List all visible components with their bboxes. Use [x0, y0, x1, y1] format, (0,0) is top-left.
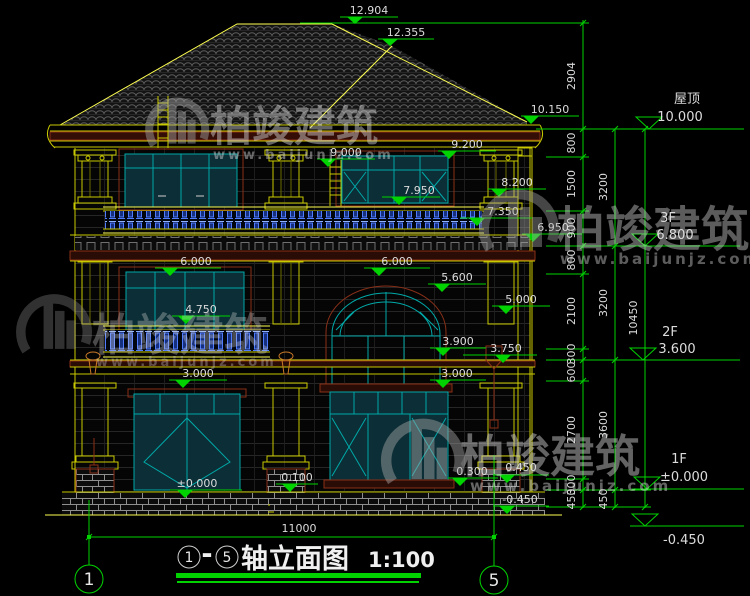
level-2f-value: 3.600: [658, 342, 695, 357]
marker-3900-value: 3.900: [442, 335, 474, 348]
drawing-svg: 12.904 12.355 10.150 9.200 9.000 8.200 7…: [0, 0, 750, 596]
watermark-brand: 柏竣建筑: [460, 430, 640, 483]
dim-2904: 2904: [565, 62, 578, 90]
axis-5-number: 5: [489, 571, 500, 591]
marker-6000-left-value: 6.000: [180, 255, 212, 268]
watermark-brand: 柏竣建筑: [210, 102, 378, 151]
cad-elevation-drawing: 12.904 12.355 10.150 9.200 9.000 8.200 7…: [0, 0, 750, 596]
marker-12355-value: 12.355: [387, 26, 426, 39]
marker-5600-value: 5.600: [441, 271, 473, 284]
watermark-left: 柏竣建筑 www.baijunjz.com: [21, 299, 277, 370]
title-axis-to: 5: [223, 550, 232, 566]
marker-0000-value: ±0.000: [177, 477, 218, 490]
level-1f-label: 1F: [671, 452, 687, 467]
marker-10150: 10.150: [521, 103, 579, 124]
drawing-scale: 1:100: [368, 548, 435, 572]
watermark-url: www.baijunjz.com: [470, 477, 671, 495]
level-2f-label: 2F: [662, 325, 678, 340]
level-roof-value: 10.000: [657, 110, 703, 125]
marker-7950-value: 7.950: [403, 184, 435, 197]
level-roof: 屋顶 10.000: [630, 92, 744, 129]
dim-600: 600: [565, 362, 578, 383]
axis-1-number: 1: [84, 570, 95, 590]
marker-0100-value: 0.100: [281, 471, 313, 484]
marker-12904-value: 12.904: [350, 4, 389, 17]
title-dash: -: [201, 539, 212, 570]
dim-2100: 2100: [565, 297, 578, 325]
dim-800a: 800: [565, 133, 578, 154]
plinth-base: [45, 492, 562, 515]
watermark-url: www.baijunjz.com: [96, 355, 277, 370]
dim-300a: 300: [565, 344, 578, 365]
title-underline-thin: [177, 581, 419, 583]
marker-9200-value: 9.200: [451, 138, 483, 151]
level-roof-label: 屋顶: [674, 92, 700, 107]
marker-6000-right-value: 6.000: [381, 255, 413, 268]
marker-8200-value: 8.200: [501, 176, 533, 189]
marker-10150-value: 10.150: [531, 103, 570, 116]
title-axis-from: 1: [185, 550, 194, 566]
title-block: 1 - 5 轴立面图 1:100: [176, 539, 435, 583]
dim-3200b: 3200: [597, 289, 610, 317]
cornice-dentil-band: [70, 235, 535, 261]
dim-1500: 1500: [565, 170, 578, 198]
marker-3000-right-value: 3.000: [441, 367, 473, 380]
level-ground-value: -0.450: [663, 533, 705, 548]
balcony-3f: [103, 207, 484, 233]
marker-12904: 12.904: [340, 4, 398, 24]
level-ground: -0.450: [630, 514, 744, 548]
dim-11000: 11000: [282, 522, 317, 535]
watermark-url: www.baijunjz.com: [213, 148, 394, 163]
marker-5000-value: 5.000: [505, 293, 537, 306]
dim-10450: 10450: [627, 301, 640, 336]
marker-12355: 12.355: [378, 26, 434, 46]
marker-3750-value: 3.750: [490, 342, 522, 355]
dim-3200a: 3200: [597, 173, 610, 201]
watermark-brand: 柏竣建筑: [92, 310, 268, 361]
title-underline-thick: [176, 573, 421, 578]
watermark-url: www.baijunjz.com: [560, 250, 750, 268]
drawing-title: 轴立面图: [241, 543, 349, 575]
door-1f-left: [128, 389, 246, 490]
